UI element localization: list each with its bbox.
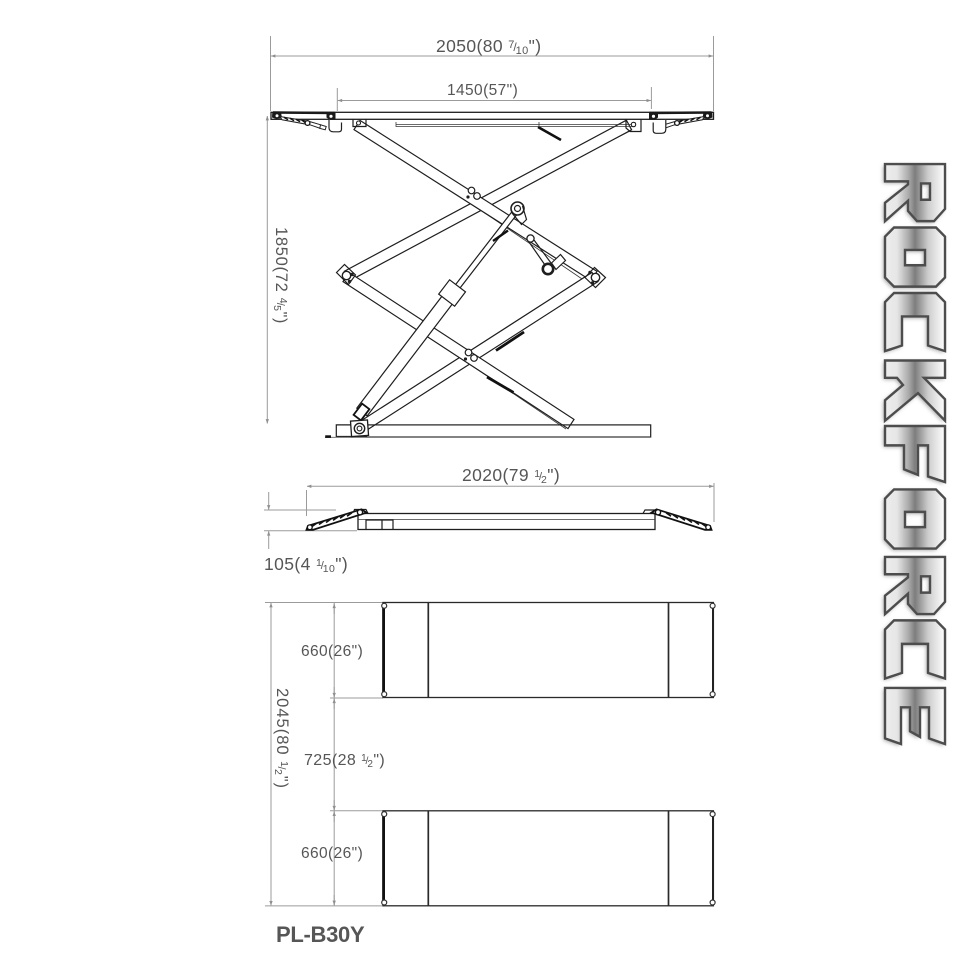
svg-text:1850(72 4/5"): 1850(72 4/5") — [271, 227, 290, 324]
svg-text:660(26"): 660(26") — [301, 643, 363, 660]
svg-text:725(28 1/2"): 725(28 1/2") — [304, 752, 385, 770]
svg-text:1450(57"): 1450(57") — [447, 82, 518, 99]
svg-text:PL-B30Y: PL-B30Y — [276, 922, 365, 947]
svg-text:660(26"): 660(26") — [301, 845, 363, 862]
svg-text:105(4 1/10"): 105(4 1/10") — [264, 554, 348, 575]
svg-text:2050(80 7/10"): 2050(80 7/10") — [436, 36, 541, 57]
svg-text:2045(80 1/2"): 2045(80 1/2") — [272, 688, 291, 789]
svg-text:2020(79 1/2"): 2020(79 1/2") — [462, 465, 560, 486]
